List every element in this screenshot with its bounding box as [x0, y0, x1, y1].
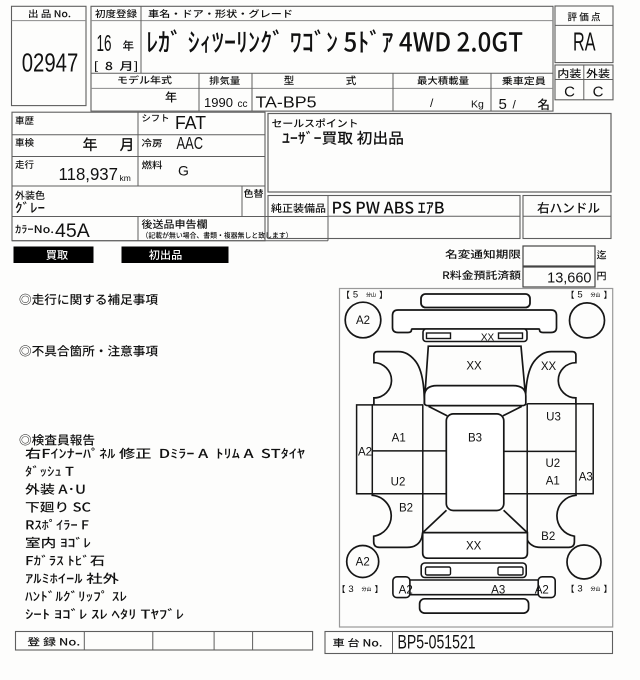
svg-text:5: 5 [353, 290, 358, 301]
svg-text:cc: cc [238, 99, 248, 110]
svg-text:A2: A2 [356, 557, 370, 569]
svg-text:3: 3 [348, 584, 353, 595]
svg-text:5: 5 [499, 96, 507, 113]
svg-text:FAT: FAT [175, 113, 206, 133]
svg-text:XX: XX [541, 361, 557, 373]
svg-text:3: 3 [577, 584, 582, 595]
svg-text:A3: A3 [579, 472, 593, 484]
svg-text:U2: U2 [391, 477, 406, 489]
svg-text:Kg: Kg [471, 99, 484, 111]
svg-text:TA-BP5: TA-BP5 [256, 95, 317, 112]
svg-text:km: km [120, 173, 131, 183]
svg-text:13,660: 13,660 [547, 271, 591, 287]
svg-text:RA: RA [573, 27, 596, 57]
svg-text:B2: B2 [399, 503, 413, 515]
svg-text:XX: XX [466, 361, 482, 373]
svg-text:G: G [178, 163, 189, 179]
svg-text:U3: U3 [546, 412, 561, 424]
svg-text:A1: A1 [546, 476, 560, 488]
svg-text:C: C [593, 84, 604, 101]
svg-text:BP5-051521: BP5-051521 [398, 633, 476, 654]
svg-text:A2: A2 [535, 585, 549, 597]
svg-text:XX: XX [466, 541, 482, 553]
svg-text:A2: A2 [399, 585, 413, 597]
svg-text:U2: U2 [545, 458, 560, 470]
svg-text:1990: 1990 [204, 95, 233, 110]
svg-text:118,937: 118,937 [59, 164, 119, 184]
svg-text:45A: 45A [55, 220, 90, 242]
svg-text:A2: A2 [358, 447, 372, 459]
svg-text:A2: A2 [356, 315, 370, 327]
svg-text:5: 5 [577, 290, 582, 301]
svg-text:C: C [564, 84, 575, 101]
svg-text:B2: B2 [541, 531, 555, 543]
svg-text:A1: A1 [392, 433, 406, 445]
svg-text:B3: B3 [468, 433, 482, 445]
svg-text:02947: 02947 [22, 48, 79, 78]
svg-text:A3: A3 [491, 585, 505, 597]
svg-text:XX: XX [481, 333, 495, 344]
svg-text:AAC: AAC [177, 133, 204, 153]
svg-text:16: 16 [97, 30, 112, 56]
